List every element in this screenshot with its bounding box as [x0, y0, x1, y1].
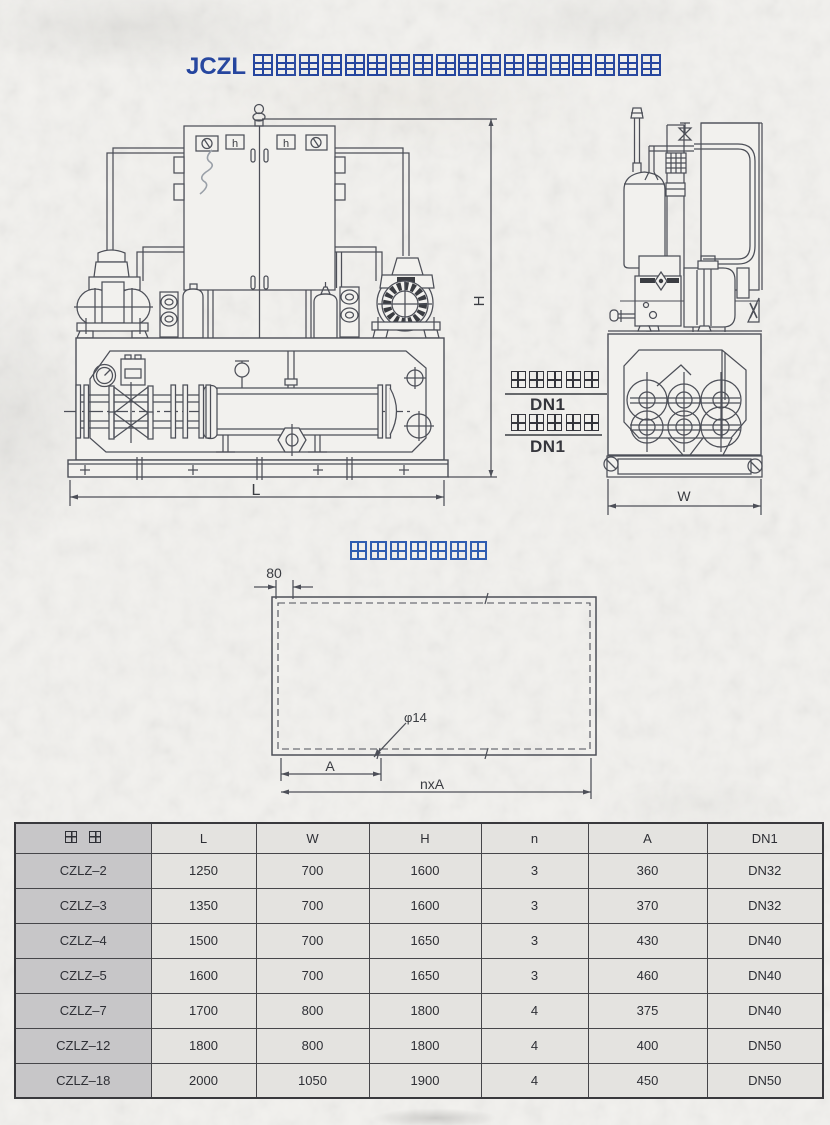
- svg-text:h: h: [232, 138, 238, 150]
- svg-text:W: W: [677, 488, 691, 504]
- svg-text:h: h: [283, 138, 289, 150]
- svg-text:A: A: [325, 758, 335, 774]
- svg-text:L: L: [252, 482, 261, 499]
- svg-text:φ14: φ14: [404, 710, 427, 725]
- svg-text:80: 80: [266, 565, 282, 581]
- svg-text:nxA: nxA: [420, 776, 445, 792]
- svg-text:H: H: [471, 296, 488, 307]
